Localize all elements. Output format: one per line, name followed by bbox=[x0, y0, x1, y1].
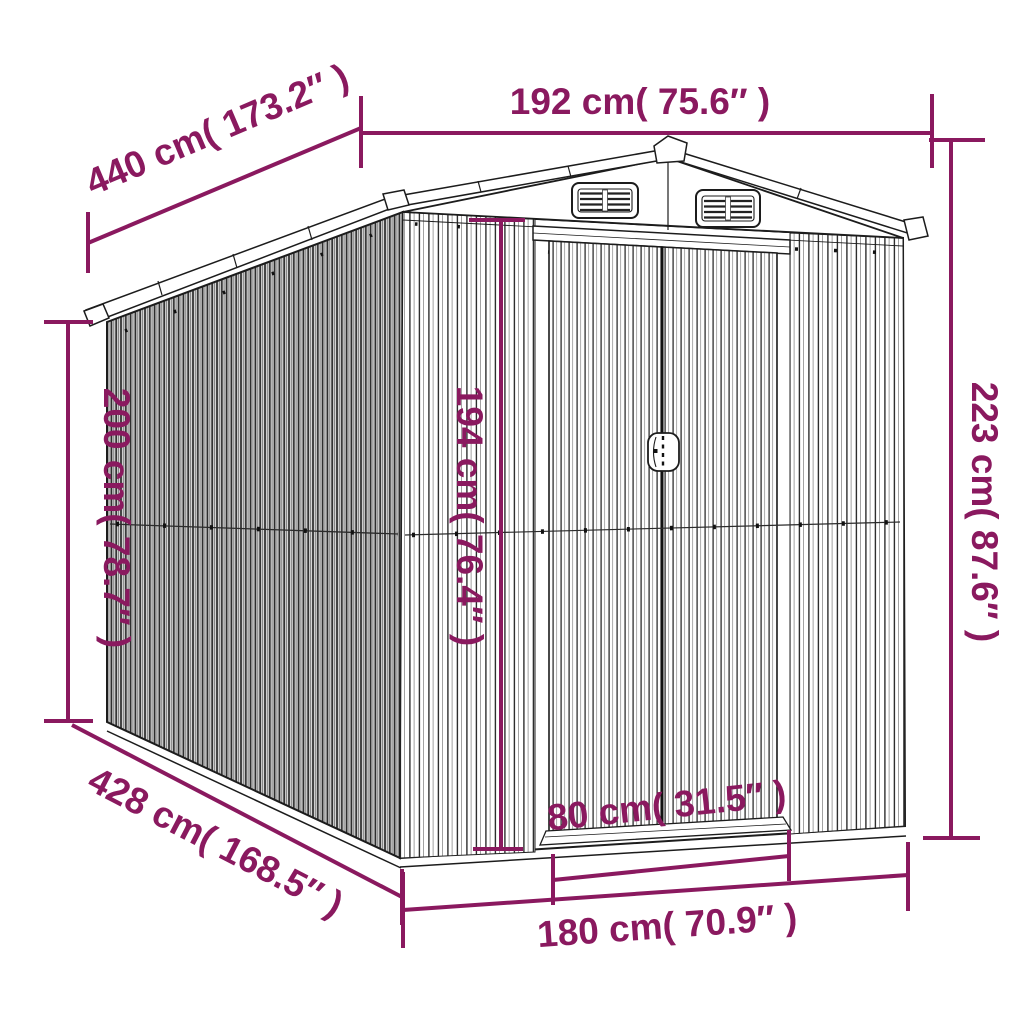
label-door-height: 194 cm( 76.4″ ) bbox=[449, 386, 490, 646]
dimension-rear-wall-height bbox=[44, 322, 93, 721]
shed-diagram-canvas: 192 cm( 75.6″ ) 440 cm( 173.2″ ) 200 cm(… bbox=[0, 0, 1024, 1024]
label-front-width-bottom: 180 cm( 70.9″ ) bbox=[536, 896, 799, 955]
side-wall bbox=[107, 212, 403, 868]
roof-front-left-corner-cap bbox=[383, 190, 409, 210]
label-rear-wall-height: 200 cm( 78.7″ ) bbox=[96, 388, 137, 648]
roof-apex-cap bbox=[654, 136, 687, 163]
product-dimension-diagram: 192 cm( 75.6″ ) 440 cm( 173.2″ ) 200 cm(… bbox=[0, 0, 1024, 1024]
front-wall-right-section bbox=[790, 233, 905, 834]
label-total-height: 223 cm( 87.6″ ) bbox=[964, 382, 1005, 642]
door-right bbox=[662, 247, 777, 828]
gable-vent-right bbox=[696, 190, 760, 227]
label-side-length-top: 440 cm( 173.2″ ) bbox=[80, 56, 355, 204]
door-handle bbox=[648, 433, 679, 471]
roof-front-right-corner-cap bbox=[904, 217, 928, 240]
label-roof-width-top: 192 cm( 75.6″ ) bbox=[510, 81, 770, 122]
gable-vent-left bbox=[572, 183, 638, 218]
shed-illustration bbox=[84, 136, 928, 868]
side-wall-panel bbox=[107, 212, 403, 858]
door-left bbox=[549, 241, 662, 834]
